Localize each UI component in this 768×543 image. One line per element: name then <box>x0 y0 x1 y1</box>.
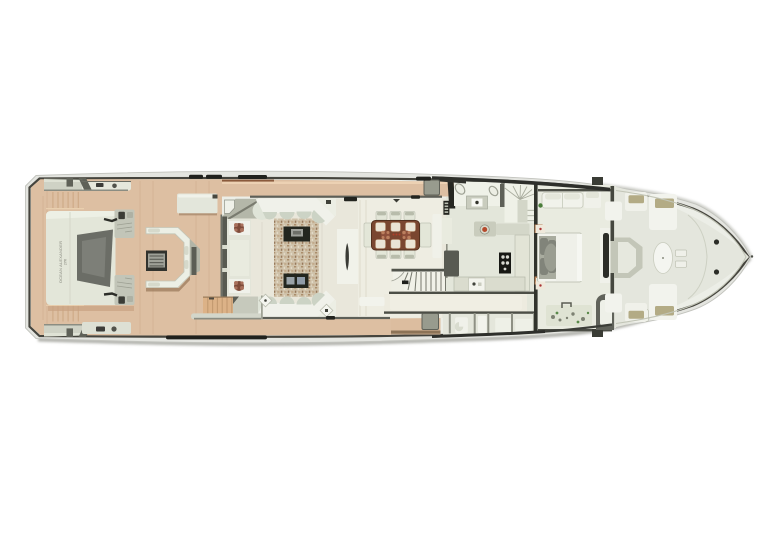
svg-text:27R: 27R <box>64 258 68 265</box>
svg-text:OCEAN ALEXANDER: OCEAN ALEXANDER <box>58 241 63 283</box>
